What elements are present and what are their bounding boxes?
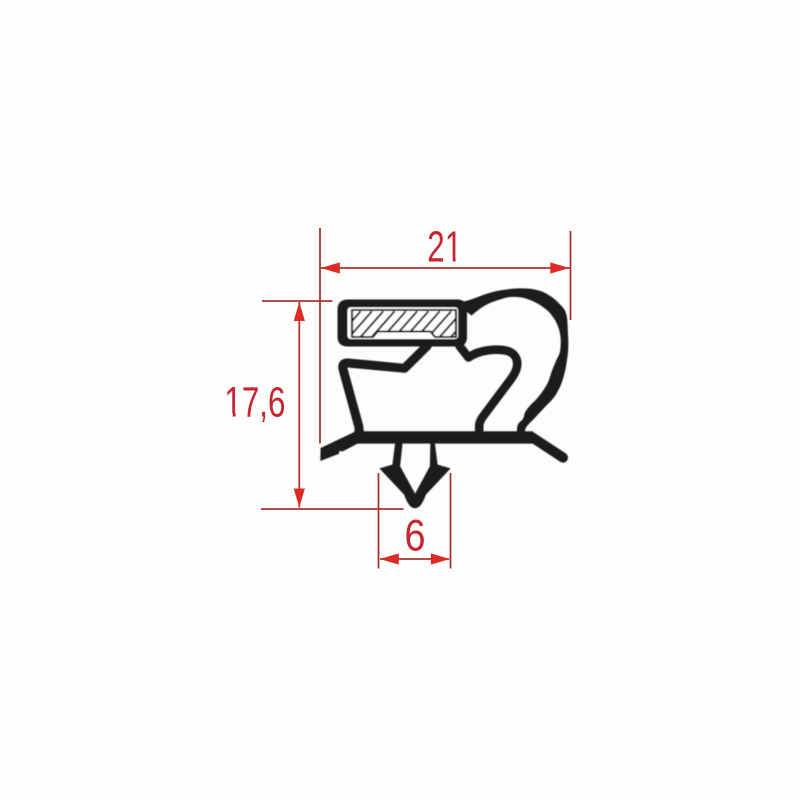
svg-text:17,6: 17,6: [224, 380, 285, 427]
svg-text:6: 6: [405, 512, 426, 561]
svg-text:21: 21: [427, 222, 462, 271]
